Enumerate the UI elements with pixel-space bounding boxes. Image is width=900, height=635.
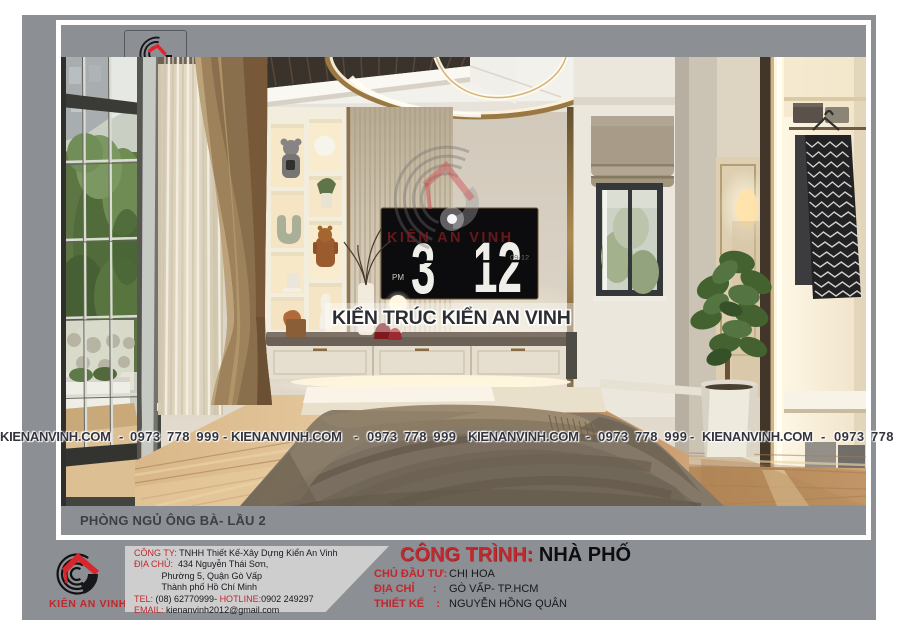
svg-text:KIÊN AN VINH: KIÊN AN VINH — [49, 597, 127, 610]
svg-text:PM: PM — [392, 273, 404, 282]
